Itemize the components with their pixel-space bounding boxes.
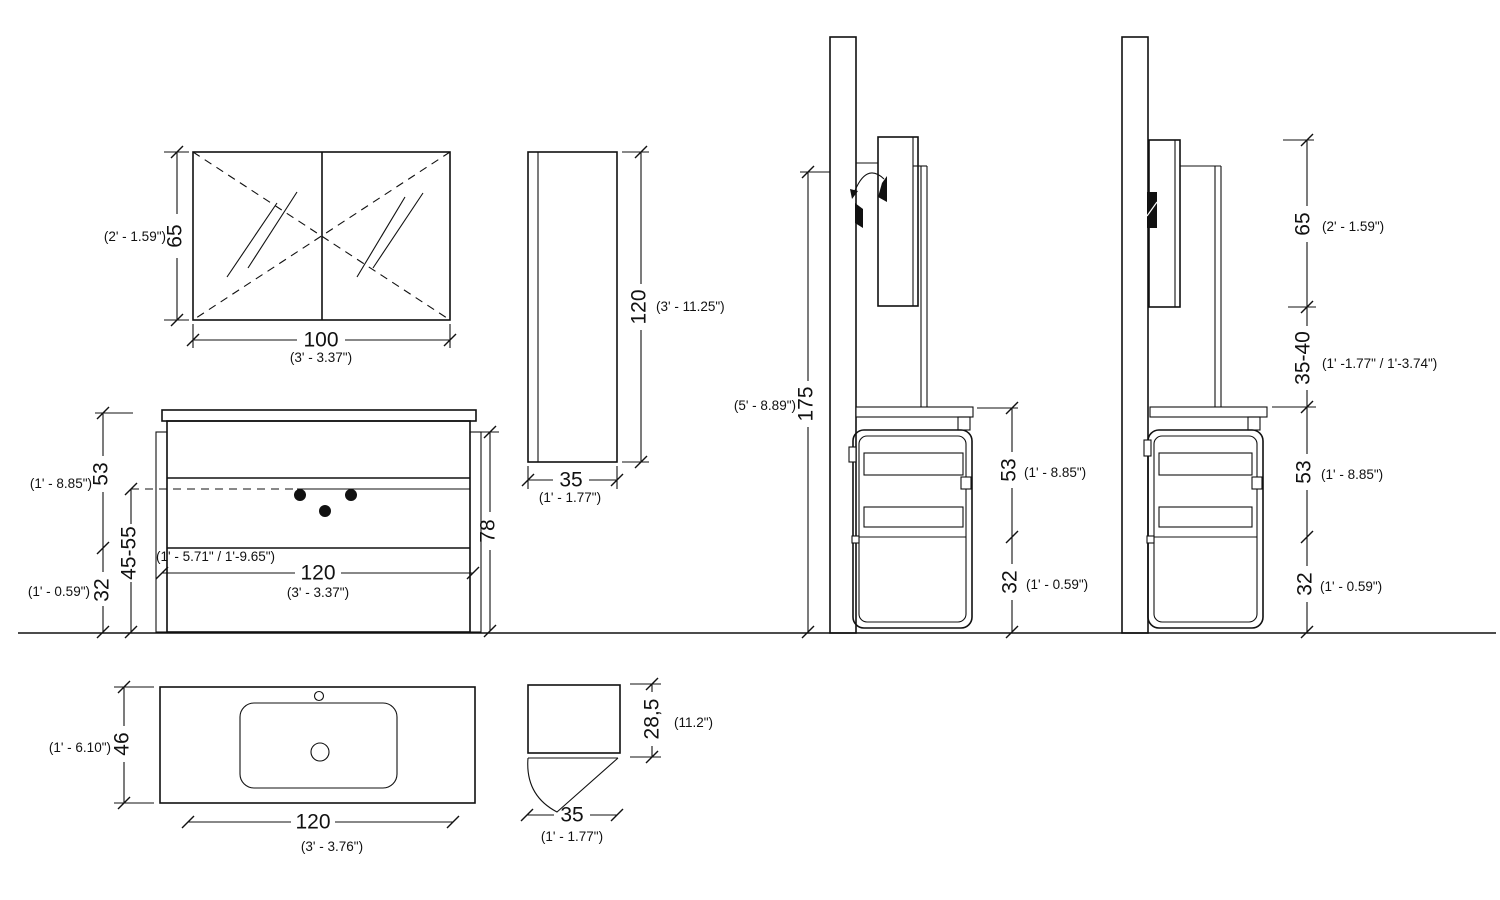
hinge-block — [1144, 440, 1151, 456]
lamp-icon — [878, 176, 887, 202]
mirror-cabinet-side — [878, 137, 918, 306]
dim-tall-cabinet-height: 120 (3' - 11.25") — [622, 146, 725, 468]
dim-side1-upper-lower: 53 (1' - 8.85") 32 (1' - 0.59") — [977, 402, 1088, 638]
hinge-block — [1147, 536, 1154, 543]
dim-label: 53 — [1293, 460, 1316, 483]
tall-cabinet-outline — [528, 152, 617, 462]
dim-sink-depth: 46 (1' - 6.10") — [49, 681, 154, 809]
dim-label-imperial: (2' - 1.59") — [1322, 219, 1384, 234]
basin-outline — [240, 703, 397, 788]
dim-label: 175 — [795, 386, 818, 421]
drawer-rail — [864, 453, 963, 475]
dim-vanity-body-height: 78 — [477, 426, 500, 637]
drawer-rail — [1159, 507, 1252, 527]
cabinet-section-view: 28,5 (11.2") 35 (1' - 1.77") — [521, 678, 713, 844]
mirror-glass-hatch — [227, 192, 423, 277]
vanity-front-view: 53 (1' - 8.85") 32 (1' - 0.59") 45-55 (1… — [28, 407, 500, 638]
dim-label-imperial: (5' - 8.89") — [734, 398, 796, 413]
tall-cabinet-front-view: 120 (3' - 11.25") 35 (1' - 1.77") — [522, 146, 725, 505]
dim-vanity-upper-lower: 53 (1' - 8.85") 32 (1' - 0.59") — [28, 407, 133, 638]
dim-label: 100 — [303, 329, 338, 352]
dim-label: 35 — [560, 804, 583, 827]
vanity-body — [167, 421, 470, 632]
dim-side2-column: 65 (2' - 1.59") 35-40 (1' -1.77" / 1'-3.… — [1272, 134, 1437, 638]
dim-label-imperial: (3' - 11.25") — [656, 299, 725, 314]
dim-label-imperial: (1' - 0.59") — [1026, 577, 1088, 592]
dim-label: 65 — [164, 224, 187, 247]
drawer-rail — [1159, 453, 1252, 475]
drawer-rail — [864, 507, 963, 527]
hinge-block — [849, 447, 856, 462]
dim-label-imperial: (1' - 8.85") — [30, 476, 92, 491]
dim-label-imperial: (1' - 0.59") — [1320, 579, 1382, 594]
dim-label: 78 — [477, 519, 500, 542]
dim-label: 45-55 — [118, 526, 141, 580]
dim-tall-cabinet-width: 35 (1' - 1.77") — [522, 466, 623, 505]
faucet-mount-holes — [294, 489, 357, 517]
wall-post — [1122, 37, 1148, 633]
dim-vanity-width: 120 (3' - 3.37") — [156, 562, 479, 601]
cabinet-section-outline — [528, 685, 620, 753]
drawer-catch — [961, 477, 971, 489]
sink-top-view: 46 (1' - 6.10") 120 (3' - 3.76") — [49, 681, 475, 854]
technical-drawing-canvas: 65 (2' - 1.59") 100 (3' - 3.37") 120 (3'… — [0, 0, 1500, 900]
counter-slab-side — [1150, 407, 1267, 417]
hinge-block — [852, 536, 859, 543]
dim-label: 120 — [295, 811, 330, 834]
mirror-front-view: 65 (2' - 1.59") 100 (3' - 3.37") — [104, 146, 456, 365]
dim-label: 32 — [1294, 572, 1317, 595]
dim-label-imperial: (1' - 8.85") — [1024, 465, 1086, 480]
dim-label: 28,5 — [641, 699, 664, 740]
dim-section-width: 35 (1' - 1.77") — [521, 804, 623, 845]
faucet-hole — [315, 692, 324, 701]
lamp-mounted — [1147, 192, 1157, 228]
dim-side1-total-height: 175 (5' - 8.89") — [734, 166, 830, 638]
dim-vanity-height-range: 45-55 (1' - 5.71" / 1'-9.65") — [118, 483, 276, 638]
dim-label-imperial: (1' - 6.10") — [49, 740, 111, 755]
dim-mirror-width: 100 (3' - 3.37") — [187, 324, 456, 365]
dim-label: 120 — [628, 289, 651, 324]
dim-sink-width: 120 (3' - 3.76") — [182, 811, 459, 855]
dim-label-imperial: (1' -1.77" / 1'-3.74") — [1322, 356, 1437, 371]
wall-post — [830, 37, 856, 633]
counter-slab — [162, 410, 476, 421]
vanity-left-leg — [156, 432, 167, 632]
dim-label-imperial: (1' - 5.71" / 1'-9.65") — [156, 549, 275, 564]
dim-mirror-height: 65 (2' - 1.59") — [104, 146, 189, 326]
drawer-catch — [1252, 477, 1262, 489]
side-view-left: 175 (5' - 8.89") 53 (1' - 8.85") 32 (1' … — [734, 37, 1088, 638]
dim-label-imperial: (1' - 1.77") — [541, 829, 603, 844]
dim-label-imperial: (3' - 3.76") — [301, 839, 363, 854]
dim-label-imperial: (1' - 1.77") — [539, 490, 601, 505]
dim-label: 32 — [999, 570, 1022, 593]
dim-label: 53 — [998, 458, 1021, 481]
dim-label-imperial: (2' - 1.59") — [104, 229, 166, 244]
dim-label-imperial: (11.2") — [674, 715, 713, 730]
dim-label: 53 — [90, 462, 113, 485]
dim-label: 35 — [559, 469, 582, 492]
dim-section-height: 28,5 (11.2") — [630, 678, 713, 763]
counter-outline — [160, 687, 475, 803]
dim-label-imperial: (1' - 8.85") — [1321, 467, 1383, 482]
lamp-rotation-arc — [854, 173, 884, 193]
dim-label-imperial: (3' - 3.37") — [290, 350, 352, 365]
dim-label-imperial: (1' - 0.59") — [28, 584, 90, 599]
dim-label: 65 — [1292, 212, 1315, 235]
dim-label-imperial: (3' - 3.37") — [287, 585, 349, 600]
slab-bracket — [958, 417, 970, 430]
side-view-right: 65 (2' - 1.59") 35-40 (1' -1.77" / 1'-3.… — [1122, 37, 1437, 638]
dim-label: 35-40 — [1292, 331, 1315, 385]
dim-label: 32 — [91, 578, 114, 601]
drain-hole — [311, 743, 329, 761]
slab-bracket — [1248, 417, 1260, 430]
dim-label: 46 — [111, 732, 134, 755]
drawing-svg: 65 (2' - 1.59") 100 (3' - 3.37") 120 (3'… — [0, 0, 1500, 900]
dim-label: 120 — [300, 562, 335, 585]
counter-slab-side — [856, 407, 973, 417]
